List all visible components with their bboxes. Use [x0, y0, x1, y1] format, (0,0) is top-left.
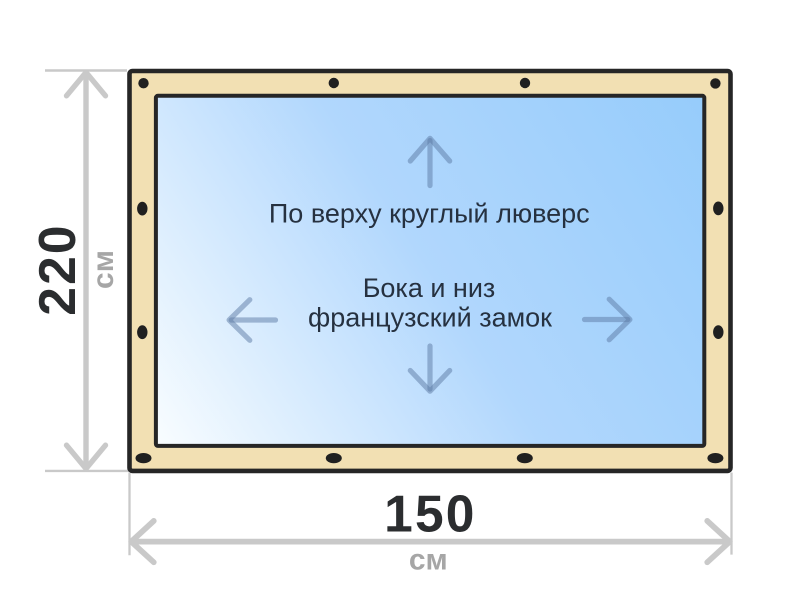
- svg-text:150: 150: [384, 485, 477, 543]
- svg-text:см: см: [87, 250, 120, 289]
- svg-text:220: 220: [28, 223, 86, 316]
- svg-text:По верху круглый люверс: По верху круглый люверс: [269, 198, 590, 228]
- svg-text:Бока и низ: Бока и низ: [363, 273, 496, 303]
- svg-text:французский замок: французский замок: [308, 303, 552, 333]
- svg-text:см: см: [409, 543, 448, 576]
